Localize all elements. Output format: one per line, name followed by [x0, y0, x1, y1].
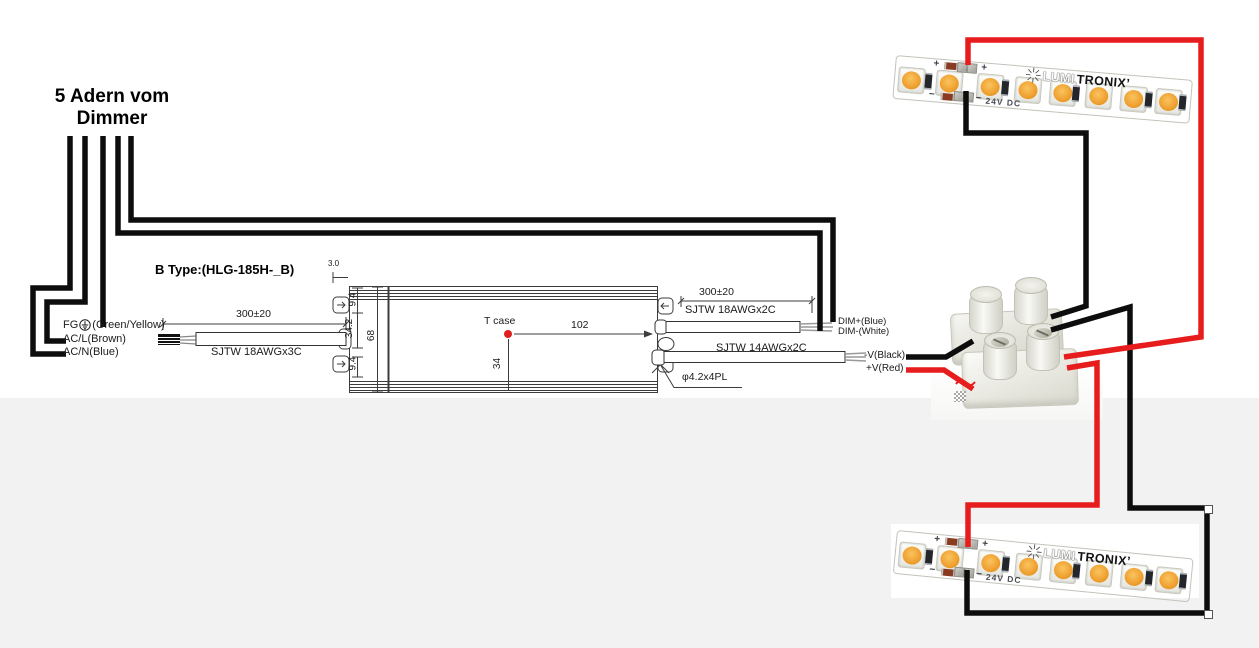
- tcase-dot: [504, 330, 512, 338]
- dim-height: 68: [366, 330, 377, 341]
- wire-vminus-to-terminal[interactable]: [906, 341, 973, 357]
- tcase-y-dim: 34: [492, 358, 503, 369]
- dimmer-heading: 5 Adern vom Dimmer: [44, 86, 180, 130]
- selection-handle[interactable]: [1204, 610, 1213, 619]
- dim-top: 9.4: [347, 293, 358, 307]
- power-cable-label: SJTW 14AWGx2C: [716, 342, 807, 354]
- v-plus-label: +V(Red): [866, 363, 904, 374]
- psu-type-label: B Type:(HLG-185H-_B): [155, 263, 294, 277]
- input-cable-drawing: [158, 317, 349, 346]
- fg-label: FG: [63, 319, 78, 331]
- wire-dimmer-acl[interactable]: [47, 136, 85, 341]
- input-cable-label: SJTW 18AWGx3C: [211, 346, 302, 358]
- tcase-x-dim: 102: [571, 320, 589, 332]
- mounting-hole-label: φ4.2x4PL: [682, 372, 727, 384]
- dim-minus-label: DIM-(White): [838, 327, 889, 337]
- input-length-dim: 300±20: [236, 309, 271, 321]
- dim-length-dim: 300±20: [699, 287, 734, 299]
- fg-label-row: FG (Green/Yellow): [63, 319, 165, 331]
- dim-bottom: 9.4: [347, 357, 358, 371]
- earth-ground-icon: [79, 319, 91, 331]
- dimmer-heading-line2: Dimmer: [44, 108, 180, 130]
- tcase-label: T case: [484, 316, 515, 328]
- black-wires[interactable]: [33, 91, 1207, 613]
- dim-bracket-offset: 3.0: [328, 260, 339, 269]
- dim-cable-label: SJTW 18AWGx2C: [685, 304, 776, 316]
- red-wires[interactable]: [906, 40, 1201, 547]
- v-minus-label: -V(Black): [864, 350, 905, 361]
- wiring-diagram-canvas: + + − − 24V DC LUMITRONIX’ + + −: [0, 0, 1259, 648]
- wire-bottom-strip-plus[interactable]: [968, 363, 1097, 547]
- wiring-layer: [0, 0, 1259, 648]
- wire-dimmer-dim-minus[interactable]: [118, 136, 820, 331]
- transparency-artifact: [954, 391, 966, 402]
- dimmer-heading-line1: 5 Adern vom: [44, 86, 180, 108]
- wire-top-strip-minus[interactable]: [966, 91, 1086, 317]
- acl-label: AC/L(Brown): [63, 333, 126, 345]
- acn-label: AC/N(Blue): [63, 346, 119, 358]
- dim-middle: 34.2: [344, 319, 355, 338]
- fg-color-label: (Green/Yellow): [92, 319, 164, 331]
- selection-handle[interactable]: [1204, 505, 1213, 514]
